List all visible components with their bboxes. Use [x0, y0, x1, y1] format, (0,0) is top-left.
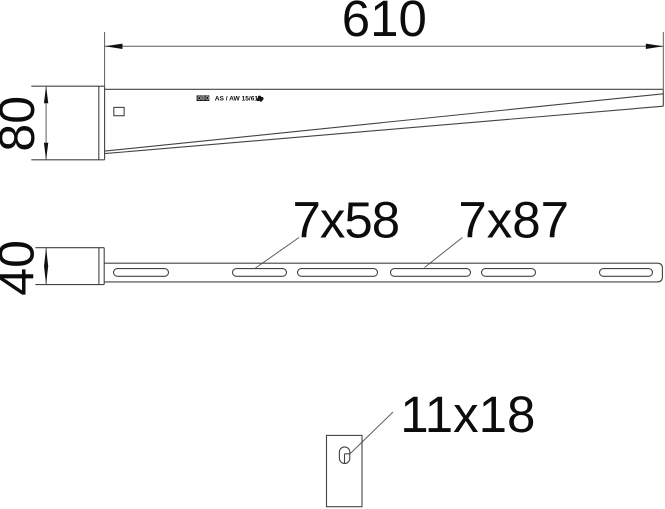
svg-text:7x87: 7x87: [458, 192, 569, 249]
svg-text:OBO: OBO: [197, 96, 209, 102]
svg-text:11x18: 11x18: [400, 386, 535, 443]
svg-text:40: 40: [0, 240, 45, 296]
svg-text:80: 80: [0, 96, 45, 152]
svg-text:610: 610: [342, 0, 427, 47]
svg-text:AS / AW 15/61: AS / AW 15/61: [215, 96, 259, 103]
svg-text:7x58: 7x58: [293, 192, 400, 249]
